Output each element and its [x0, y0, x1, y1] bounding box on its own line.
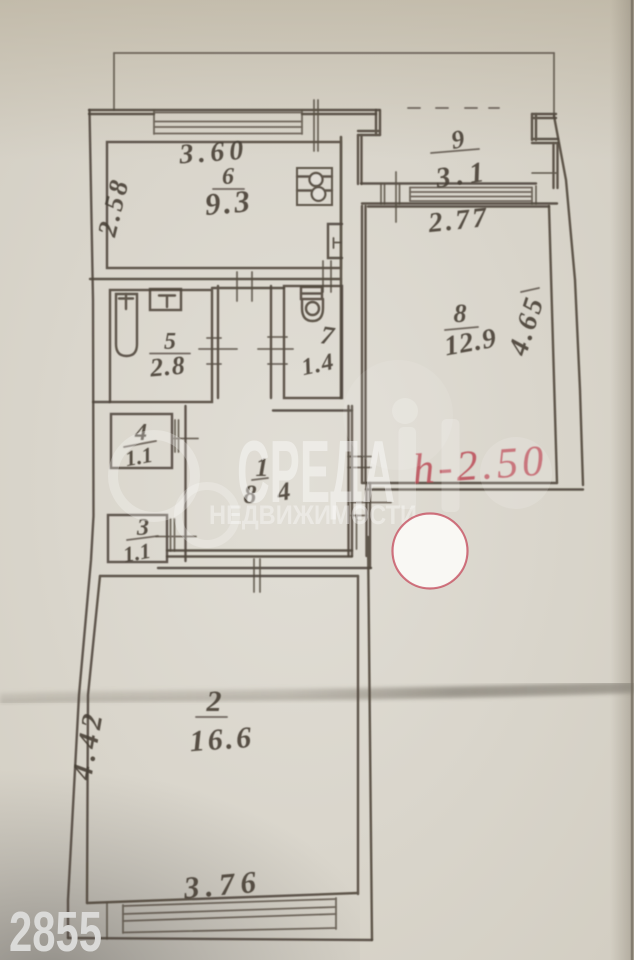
svg-text:1.1: 1.1 — [121, 538, 152, 567]
svg-text:16.6: 16.6 — [189, 721, 256, 758]
svg-text:8: 8 — [454, 299, 467, 328]
svg-text:2855: 2855 — [9, 900, 102, 960]
svg-text:2: 2 — [206, 685, 222, 718]
svg-text:2.8: 2.8 — [148, 351, 187, 383]
svg-text:2.77: 2.77 — [426, 202, 491, 239]
svg-text:9.3: 9.3 — [203, 183, 254, 222]
svg-text:3.76: 3.76 — [181, 864, 263, 906]
svg-text:3.60: 3.60 — [177, 135, 249, 171]
svg-text:НЕДВИЖИМОСТИ: НЕДВИЖИМОСТИ — [209, 500, 417, 530]
